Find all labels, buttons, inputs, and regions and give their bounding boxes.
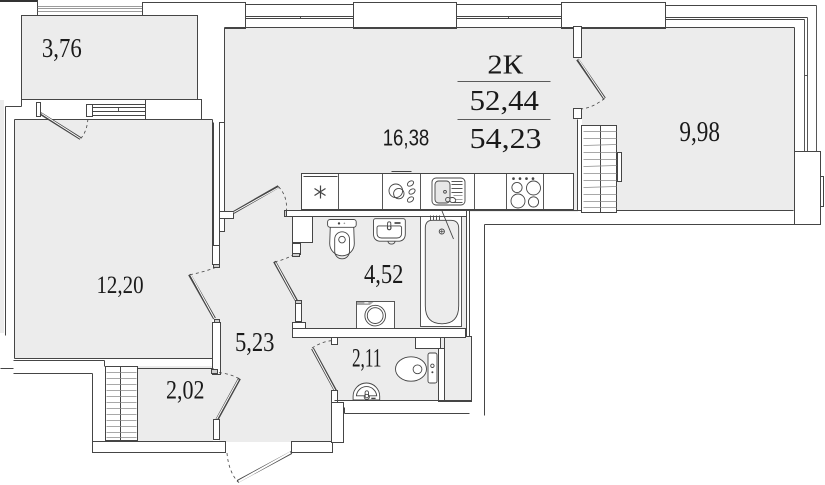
svg-text:3,76: 3,76 xyxy=(42,33,82,63)
svg-text:2,11: 2,11 xyxy=(352,344,382,373)
svg-text:4,52: 4,52 xyxy=(364,259,404,289)
svg-text:16,38: 16,38 xyxy=(383,124,430,150)
svg-text:54,23: 54,23 xyxy=(470,123,542,155)
svg-text:5,23: 5,23 xyxy=(235,326,275,357)
svg-text:52,44: 52,44 xyxy=(470,85,540,117)
svg-text:2К: 2К xyxy=(487,49,524,79)
svg-text:9,98: 9,98 xyxy=(679,117,720,148)
svg-text:12,20: 12,20 xyxy=(96,272,143,299)
svg-text:2,02: 2,02 xyxy=(166,376,205,405)
